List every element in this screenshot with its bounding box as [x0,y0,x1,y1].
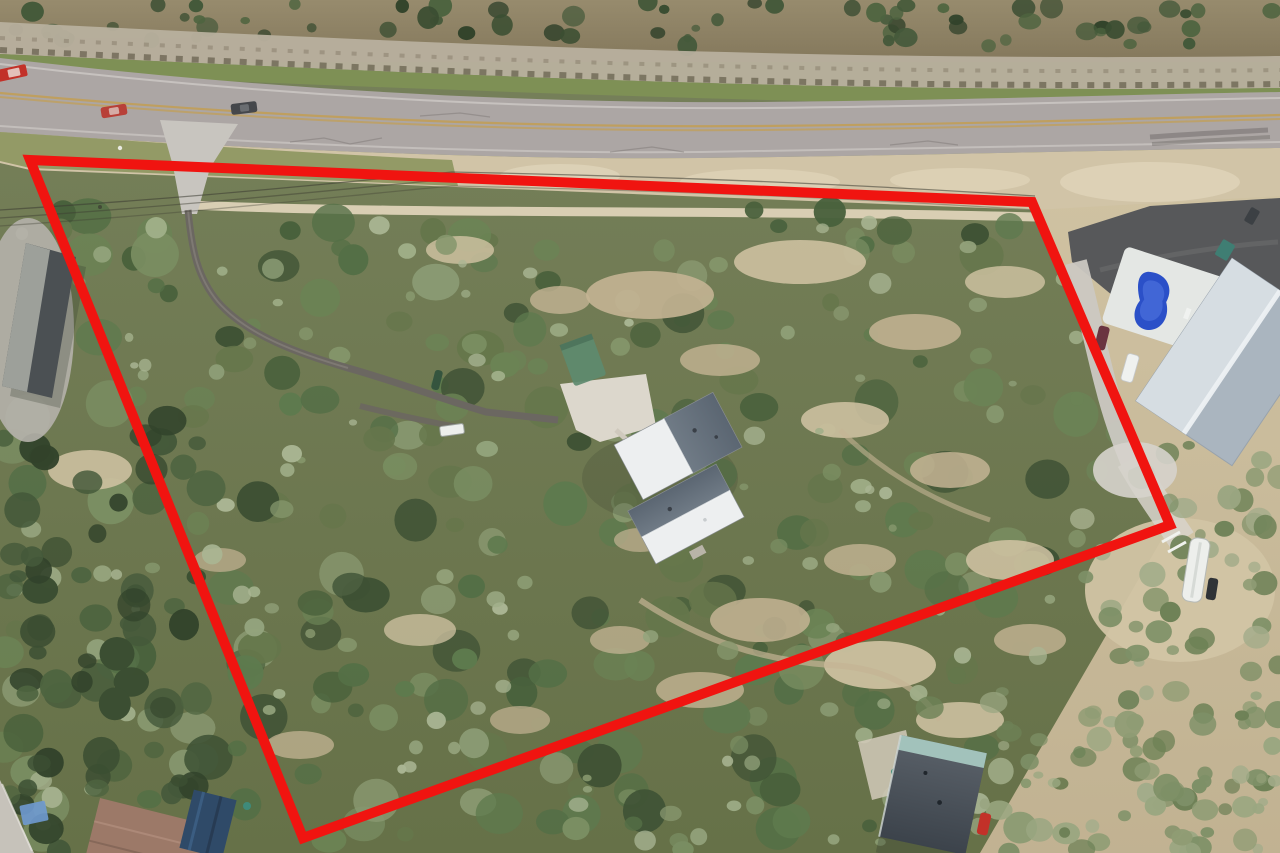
vegetation-blob [492,14,513,35]
vegetation-blob [209,364,225,379]
vegetation-blob [745,202,764,219]
vegetation-blob [338,663,369,687]
vegetation-blob [1021,779,1032,789]
vegetation-blob [938,3,950,13]
vegetation-blob [743,556,754,565]
vegetation-blob [468,354,485,367]
vegetation-blob [1070,508,1095,529]
vegetation-blob [72,470,102,494]
vegetation-blob [436,569,453,584]
vegetation-blob [338,244,368,275]
vegetation-blob [543,481,587,526]
vegetation-blob [263,705,276,715]
vegetation-blob [1025,460,1069,499]
vegetation-blob [1000,34,1012,46]
vegetation-blob [181,682,212,715]
vegetation-blob [30,445,59,470]
vegetation-blob [265,603,279,613]
vegetation-blob [513,312,546,347]
vegetation-blob [18,779,37,796]
vegetation-blob [421,585,456,614]
vegetation-blob [1020,754,1038,770]
vegetation-blob [202,544,223,564]
vegetation-blob [1030,733,1048,746]
vegetation-blob [363,426,395,451]
vegetation-blob [970,348,992,364]
vegetation-blob [1139,562,1165,587]
vegetation-blob [1235,710,1249,720]
vegetation-blob [273,299,283,306]
vegetation-blob [894,28,918,47]
vegetation-blob [1033,772,1043,779]
vegetation-blob [773,804,811,839]
vegetation-blob [529,659,568,687]
vegetation-blob [495,680,511,693]
vegetation-blob [1232,765,1250,783]
vegetation-blob [88,524,106,543]
vegetation-blob [397,827,414,842]
vegetation-blob [1233,829,1257,852]
vegetation-blob [630,322,661,348]
vegetation-blob [412,264,459,301]
vegetation-blob [233,586,251,604]
vegetation-blob [969,298,987,312]
vegetation-blob [470,701,485,714]
vegetation-blob [583,775,592,782]
vegetation-blob [1201,827,1215,838]
vegetation-blob [1118,690,1139,709]
vegetation-blob [40,669,73,703]
vegetation-blob [71,567,91,583]
vegetation-blob [560,28,580,44]
vegetation-blob [100,637,135,671]
vegetation-blob [459,728,489,758]
vegetation-blob [21,2,44,22]
vegetation-blob [1182,20,1201,37]
vegetation-blob [517,576,532,590]
vegetation-blob [189,436,206,450]
vegetation-blob [583,786,592,793]
vegetation-blob [1232,796,1257,818]
vegetation-blob [427,712,446,729]
vegetation-blob [1225,553,1240,567]
vegetation-blob [562,817,589,840]
vegetation-blob [394,499,436,542]
vegetation-blob [870,572,892,593]
vegetation-blob [1254,515,1277,539]
utility-marker [118,146,122,150]
vegetation-blob [1078,708,1101,727]
vegetation-blob [228,741,247,757]
vegetation-blob [301,386,340,414]
vegetation-blob [954,647,971,663]
vegetation-blob [815,428,824,434]
vegetation-blob [476,441,498,457]
vegetation-blob [988,758,1014,785]
vegetation-blob [380,22,397,38]
vegetation-blob [1070,748,1096,767]
vegetation-blob [282,445,302,462]
vegetation-blob [879,487,892,499]
vegetation-blob [403,761,417,772]
vegetation-blob [461,290,470,298]
vegetation-blob [1123,39,1136,49]
vegetation-blob [995,213,1023,239]
vegetation-blob [964,368,1004,406]
vegetation-blob [781,326,795,340]
vegetation-blob [169,609,199,640]
vegetation-blob [861,216,877,230]
vegetation-blob [1146,620,1172,643]
vegetation-blob [877,698,890,709]
vegetation-blob [406,291,415,301]
vegetation-blob [452,648,477,669]
vegetation-blob [1171,829,1192,845]
vegetation-blob [865,485,874,494]
vegetation-blob [454,466,493,501]
vegetation-blob [130,362,138,368]
vegetation-blob [1048,778,1061,788]
vegetation-blob [280,221,301,240]
sw-teal-item [243,802,251,810]
vegetation-blob [569,798,589,812]
vegetation-blob [398,243,416,259]
vegetation-blob [184,743,218,775]
vegetation-blob [690,828,707,845]
vegetation-blob [826,623,840,633]
vegetation-blob [739,484,748,491]
vegetation-blob [1020,385,1045,405]
vegetation-blob [624,319,634,327]
vegetation-blob [1192,799,1218,820]
vegetation-blob [78,653,97,668]
vegetation-blob [717,641,739,660]
vegetation-blob [273,689,285,699]
vegetation-blob [264,356,300,390]
vegetation-blob [1086,819,1100,832]
vegetation-blob [170,455,196,480]
vegetation-blob [986,405,1004,423]
vegetation-blob [528,358,548,374]
vegetation-blob [262,259,284,279]
vegetation-blob [1251,451,1272,469]
vegetation-blob [448,742,460,754]
vegetation-blob [1159,0,1180,17]
vegetation-blob [1183,38,1195,50]
vegetation-blob [981,39,996,52]
vegetation-blob [1105,20,1124,39]
aerial-photo-canvas [0,0,1280,853]
vegetation-blob [1189,628,1215,650]
vegetation-blob [916,696,944,719]
vegetation-blob [711,13,724,26]
vegetation-blob [820,702,838,716]
vegetation-blob [109,494,127,512]
vegetation-blob [244,618,264,636]
vegetation-blob [83,737,120,774]
vegetation-blob [816,223,829,233]
vegetation-blob [1045,595,1056,604]
vegetation-blob [960,241,977,253]
vegetation-blob [295,764,322,785]
vegetation-blob [1256,773,1266,783]
vegetation-blob [458,575,485,599]
vegetation-blob [3,714,43,752]
vegetation-blob [508,630,520,641]
vegetation-blob [707,310,734,329]
vegetation-blob [148,406,187,436]
vegetation-blob [1153,730,1175,752]
vegetation-blob [1164,781,1185,801]
vegetation-blob [488,536,508,554]
vegetation-blob [577,744,621,788]
vegetation-blob [145,217,167,238]
vegetation-blob [740,393,778,421]
vegetation-blob [369,704,398,731]
vegetation-blob [1118,810,1131,821]
vegetation-blob [844,0,861,16]
vegetation-blob [800,519,829,547]
vegetation-blob [27,755,50,772]
vegetation-blob [1243,579,1257,591]
vegetation-blob [299,327,313,340]
vegetation-blob [650,27,665,39]
vegetation-blob [270,500,293,518]
vegetation-blob [280,463,294,477]
vegetation-blob [802,557,818,570]
vegetation-blob [145,563,160,574]
vegetation-blob [1217,485,1241,509]
vegetation-blob [643,630,658,643]
vegetation-blob [1162,681,1189,702]
vegetation-blob [189,0,203,12]
vegetation-blob [660,806,682,821]
vegetation-blob [730,736,748,754]
vegetation-blob [187,512,209,535]
vegetation-blob [1180,9,1191,18]
vegetation-blob [1199,775,1212,788]
vegetation-blob [1068,530,1085,548]
vegetation-blob [139,359,152,372]
vegetation-blob [150,697,175,718]
vegetation-blob [1069,331,1083,344]
vegetation-blob [458,26,475,40]
vegetation-blob [476,793,523,834]
vegetation-blob [491,371,505,381]
aerial-photo [0,0,1280,853]
vegetation-blob [138,370,149,381]
vegetation-blob [877,216,912,245]
vegetation-blob [691,25,700,32]
vegetation-blob [855,374,865,382]
vegetation-blob [572,596,609,629]
vegetation-blob [383,453,417,480]
vegetation-blob [1126,714,1143,731]
vegetation-blob [298,590,333,615]
vegetation-blob [746,796,764,814]
vegetation-blob [71,671,92,693]
vegetation-blob [913,355,928,368]
vegetation-blob [9,570,26,582]
vegetation-blob [1134,762,1159,780]
vegetation-blob [1183,441,1195,450]
vegetation-blob [1189,712,1216,735]
vegetation-blob [17,686,39,702]
vegetation-blob [446,518,464,532]
vegetation-blob [1078,571,1093,584]
vegetation-blob [409,740,423,754]
vegetation-blob [625,817,643,831]
vegetation-blob [611,338,630,356]
vegetation-blob [770,219,787,233]
vegetation-blob [312,204,355,242]
vegetation-blob [814,197,846,227]
vegetation-blob [349,419,357,425]
vegetation-blob [945,552,969,575]
vegetation-blob [137,790,161,808]
vegetation-blob [458,260,467,268]
vegetation-blob [417,6,439,29]
vegetation-blob [144,742,164,758]
vegetation-blob [980,798,990,809]
vegetation-blob [4,492,40,528]
vegetation-blob [1130,745,1143,757]
vegetation-blob [1243,626,1269,649]
vegetation-blob [332,573,370,601]
vegetation-blob [1070,392,1084,406]
vegetation-blob [653,239,674,261]
vegetation-blob [279,393,302,416]
vegetation-blob [125,333,134,342]
power-pole [98,205,102,209]
vegetation-blob [634,831,656,851]
vegetation-blob [1139,685,1154,700]
vegetation-blob [1137,21,1151,32]
vegetation-blob [540,752,574,784]
vegetation-blob [320,504,347,529]
vegetation-blob [562,6,585,27]
vegetation-blob [395,681,415,697]
vegetation-blob [80,604,112,631]
vegetation-blob [240,17,250,24]
vegetation-blob [1246,468,1264,487]
vegetation-blob [862,820,877,833]
vegetation-blob [1076,23,1098,41]
vegetation-blob [833,306,849,321]
vegetation-blob [908,512,933,530]
vegetation-blob [855,500,871,512]
vegetation-blob [744,756,760,771]
vegetation-blob [1191,3,1206,18]
vegetation-blob [426,334,450,351]
vegetation-blob [348,704,364,718]
vegetation-blob [21,546,43,566]
vegetation-blob [869,273,891,294]
vegetation-blob [148,278,165,293]
vegetation-blob [93,246,111,262]
vegetation-blob [1160,602,1181,622]
vegetation-blob [1129,621,1144,633]
vegetation-blob [99,687,131,720]
vegetation-blob [1218,803,1232,815]
vegetation-blob [534,240,560,261]
vegetation-blob [1125,645,1149,662]
vegetation-blob [883,35,895,46]
vegetation-blob [659,5,670,14]
vegetation-blob [386,312,412,332]
vegetation-blob [722,756,733,767]
vegetation-blob [111,569,122,579]
vegetation-blob [980,692,1008,713]
vegetation-blob [1026,818,1053,842]
vegetation-blob [550,323,568,337]
vegetation-blob [487,591,506,607]
vegetation-blob [307,23,317,32]
vegetation-blob [523,268,537,279]
vegetation-blob [1059,827,1070,838]
vegetation-blob [27,614,53,640]
vegetation-blob [117,588,150,621]
vegetation-blob [1099,607,1123,627]
vegetation-blob [180,13,190,22]
vegetation-blob [949,20,967,35]
vegetation-blob [369,216,390,234]
vegetation-blob [770,539,787,554]
vegetation-blob [436,235,457,255]
vegetation-blob [1018,13,1041,29]
caliche-patch-4 [1060,162,1240,202]
vegetation-blob [998,741,1009,751]
vegetation-blob [305,629,315,638]
vegetation-blob [300,279,340,317]
vegetation-blob [828,834,840,844]
vegetation-blob [1248,562,1260,573]
vegetation-blob [823,464,841,481]
vegetation-blob [338,638,357,652]
vegetation-blob [670,833,689,848]
vegetation-blob [1087,727,1112,752]
vegetation-blob [462,334,487,355]
vegetation-blob [237,481,280,522]
vegetation-blob [1214,521,1234,537]
vegetation-blob [93,565,111,581]
vegetation-blob [217,267,228,276]
vegetation-blob [1240,662,1262,682]
vegetation-blob [1167,645,1179,655]
vegetation-blob [171,774,188,786]
vegetation-blob [85,780,109,797]
vegetation-blob [744,427,765,445]
vegetation-blob [244,337,257,349]
vegetation-blob [1029,647,1047,665]
vegetation-blob [29,646,47,660]
vegetation-blob [866,3,886,23]
vegetation-blob [1009,381,1017,387]
vegetation-blob [889,524,897,531]
vegetation-blob [1251,691,1262,700]
vegetation-blob [194,15,206,24]
vegetation-blob [709,257,728,273]
vegetation-blob [1002,721,1014,731]
vegetation-blob [727,801,742,812]
vegetation-blob [215,326,244,348]
